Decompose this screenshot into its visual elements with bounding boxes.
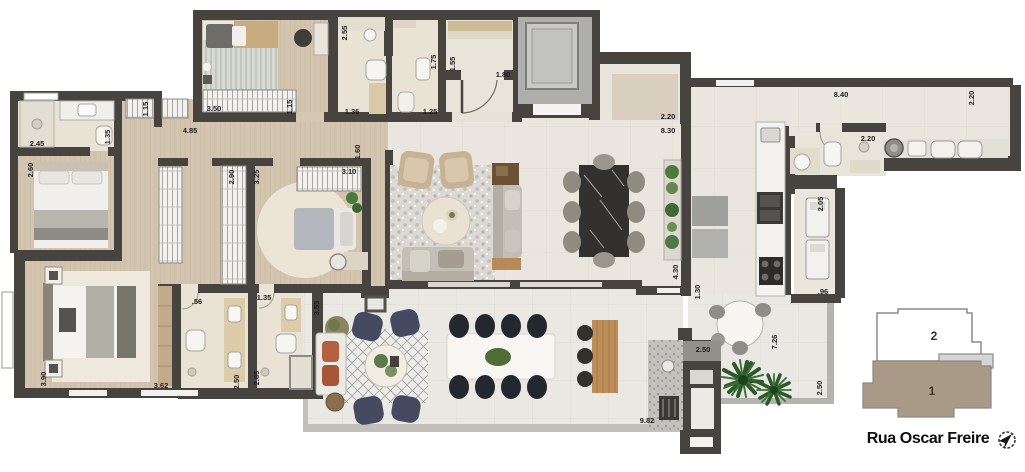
- svg-text:8.40: 8.40: [834, 90, 849, 99]
- svg-text:.96: .96: [818, 287, 828, 296]
- svg-text:2.50: 2.50: [815, 381, 824, 396]
- svg-text:3.25: 3.25: [252, 170, 261, 185]
- svg-text:2.50: 2.50: [232, 375, 241, 390]
- svg-text:Rua Oscar Freire: Rua Oscar Freire: [867, 430, 990, 447]
- svg-text:9.82: 9.82: [640, 416, 655, 425]
- svg-text:7.26: 7.26: [770, 335, 779, 350]
- svg-text:3.55: 3.55: [312, 301, 321, 316]
- svg-text:2.20: 2.20: [861, 134, 876, 143]
- svg-text:3.62: 3.62: [154, 381, 169, 390]
- svg-text:.56: .56: [192, 297, 202, 306]
- svg-text:2.85: 2.85: [252, 371, 261, 386]
- svg-text:2.90: 2.90: [227, 170, 236, 185]
- svg-text:2.05: 2.05: [816, 197, 825, 212]
- svg-text:4.30: 4.30: [671, 265, 680, 280]
- svg-text:2.45: 2.45: [30, 139, 45, 148]
- svg-text:2.55: 2.55: [340, 26, 349, 41]
- svg-text:2.20: 2.20: [661, 112, 676, 121]
- svg-text:8.30: 8.30: [661, 126, 676, 135]
- svg-text:1.15: 1.15: [285, 100, 294, 115]
- svg-text:3.90: 3.90: [39, 372, 48, 387]
- svg-text:1.25: 1.25: [423, 107, 438, 116]
- svg-text:2.20: 2.20: [967, 91, 976, 106]
- svg-text:1.35: 1.35: [257, 293, 272, 302]
- svg-text:1.15: 1.15: [141, 102, 150, 117]
- svg-text:1.30: 1.30: [693, 285, 702, 300]
- svg-text:1.75: 1.75: [429, 55, 438, 70]
- svg-text:1: 1: [929, 384, 936, 398]
- svg-text:1.35: 1.35: [103, 130, 112, 145]
- svg-text:2: 2: [931, 329, 938, 343]
- svg-text:1.36: 1.36: [345, 107, 360, 116]
- svg-text:1.80: 1.80: [496, 70, 511, 79]
- svg-text:3.50: 3.50: [207, 104, 222, 113]
- svg-text:2.50: 2.50: [696, 345, 711, 354]
- svg-text:1.55: 1.55: [448, 57, 457, 72]
- svg-text:1.60: 1.60: [353, 145, 362, 160]
- svg-text:2.60: 2.60: [26, 163, 35, 178]
- svg-text:3.10: 3.10: [342, 167, 357, 176]
- svg-text:4.85: 4.85: [183, 126, 198, 135]
